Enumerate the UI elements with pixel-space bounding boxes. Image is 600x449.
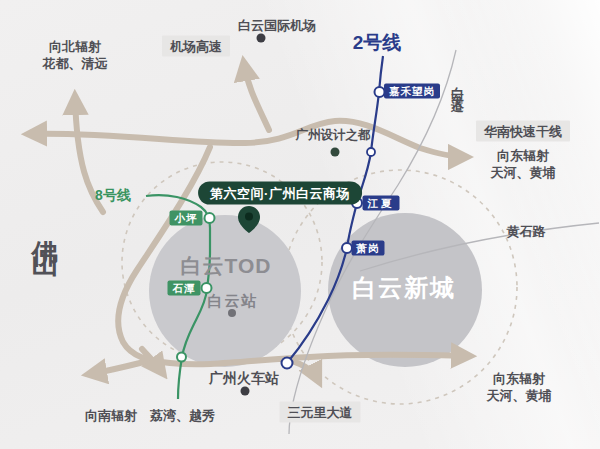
foshan-label: 佛山 [27,218,63,238]
station-label-xiaogang: 萧岗 [352,241,385,256]
direction-north-label: 向北辐射 花都、清远 [43,38,108,72]
direction-north-line2: 花都、清远 [43,55,108,72]
railway-station-label: 广州火车站 [209,370,279,387]
south-china-expressway-label: 华南快速干线 [476,121,570,142]
road-east-west-upper [30,121,465,157]
zone-label-tod: 白云TOD [181,257,272,274]
zone-label-baiyun-station: 白云站 [208,292,259,309]
mall-label: 第六空间·广州白云商场 [198,182,362,205]
design-city-dot [331,148,340,157]
station-label-jiahewanggang: 嘉禾望岗 [384,84,440,99]
station-marker-railway [282,358,293,369]
railway-station-dot [241,387,250,396]
baiyun-avenue-label: 白云大道 [448,77,466,93]
huangshi-road-label: 黄石路 [507,223,546,240]
direction-east-upper-line1: 向东辐射 [491,147,556,164]
station-marker-xiaoping [205,213,215,223]
line8-label: 8号线 [95,187,131,204]
road-branch-west [90,361,148,374]
airport-expressway-label: 机场高速 [162,36,230,57]
station-marker-unnamed [367,148,375,156]
baiyun-station-dot [228,309,236,317]
direction-east-lower-line2: 天河、黄埔 [487,387,552,404]
direction-east-upper-label: 向东辐射 天河、黄埔 [491,147,556,181]
airport-label: 白云国际机场 [238,17,316,34]
station-label-xiaoping: 小坪 [170,211,203,226]
road-airport-expressway [244,64,269,130]
station-marker-jiahewanggang [375,87,385,97]
direction-north-line1: 向北辐射 [43,38,108,55]
station-marker-line8-end [177,353,186,362]
baiyun-transit-map: 白云TOD 白云站 白云新城 白云国际机场 广州设计之都 广州火车站 佛山 第六… [0,0,600,449]
station-label-jiangxia: 江夏 [363,196,400,211]
station-label-shitan: 石潭 [168,281,201,296]
station-marker-xiaogang [342,243,352,253]
direction-east-lower-label: 向东辐射 天河、黄埔 [487,370,552,404]
direction-south-label: 向南辐射 荔湾、越秀 [85,407,215,424]
line2-label: 2号线 [353,34,402,51]
zone-label-new-town: 白云新城 [352,279,456,296]
direction-east-lower-line1: 向东辐射 [487,370,552,387]
sanyuanli-avenue-label: 三元里大道 [280,402,361,423]
airport-dot [257,34,266,43]
direction-east-upper-line2: 天河、黄埔 [491,164,556,181]
design-city-label: 广州设计之都 [296,127,371,144]
